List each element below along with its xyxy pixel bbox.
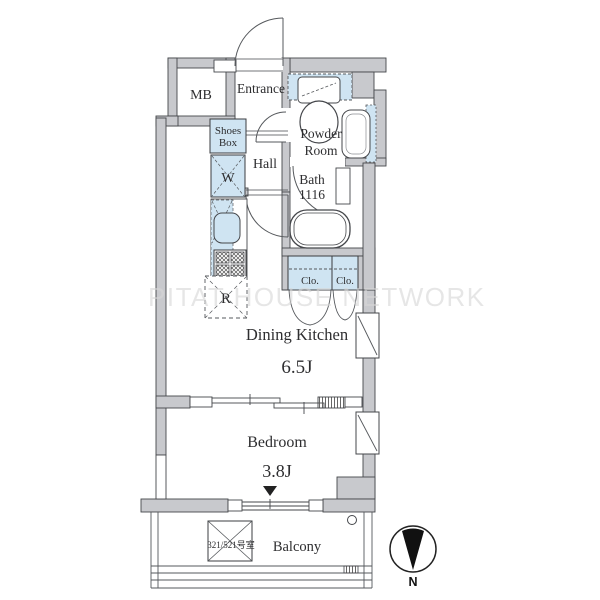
label-bath-1: Bath — [299, 172, 325, 187]
label-shoes-box-2: Box — [219, 137, 238, 149]
label-dining-kitchen-size: 6.5J — [281, 357, 312, 378]
label-bedroom: Bedroom — [247, 434, 307, 451]
floorplan-image: MB Entrance Shoes Box Hall Powder Room B… — [0, 0, 600, 600]
bedroom-window-icon — [356, 412, 379, 454]
balcony-structure — [151, 512, 372, 588]
floorplan-svg: MB Entrance Shoes Box Hall Powder Room B… — [0, 0, 600, 600]
label-hall: Hall — [253, 157, 277, 172]
compass-icon: N — [390, 526, 436, 589]
sliding-partition-icon — [190, 394, 362, 414]
label-powder-2: Room — [304, 143, 338, 158]
label-bath-2: 1116 — [299, 187, 325, 202]
dk-window-icon — [356, 313, 379, 358]
washbasin-icon — [342, 105, 376, 162]
watermark-text: PITAT HOUSE NETWORK — [148, 282, 486, 312]
label-bedroom-size: 3.8J — [262, 461, 292, 481]
label-powder-1: Powder — [300, 126, 342, 141]
balcony-drain-icon — [348, 516, 357, 525]
balcony-vent-icon — [344, 566, 358, 573]
label-shoes-box-1: Shoes — [215, 125, 241, 137]
bedroom-left-wall — [156, 455, 166, 499]
label-mb: MB — [190, 88, 212, 103]
label-dining-kitchen: Dining Kitchen — [246, 325, 348, 344]
label-balcony: Balcony — [273, 539, 322, 555]
compass-north-label: N — [408, 575, 417, 589]
stove-icon — [214, 250, 246, 278]
label-washer: W — [221, 171, 235, 186]
balcony-window-icon — [228, 499, 323, 511]
balcony-direction-marker — [263, 486, 277, 496]
label-entrance: Entrance — [237, 81, 285, 96]
label-room-number: 321/521号室 — [207, 539, 255, 550]
